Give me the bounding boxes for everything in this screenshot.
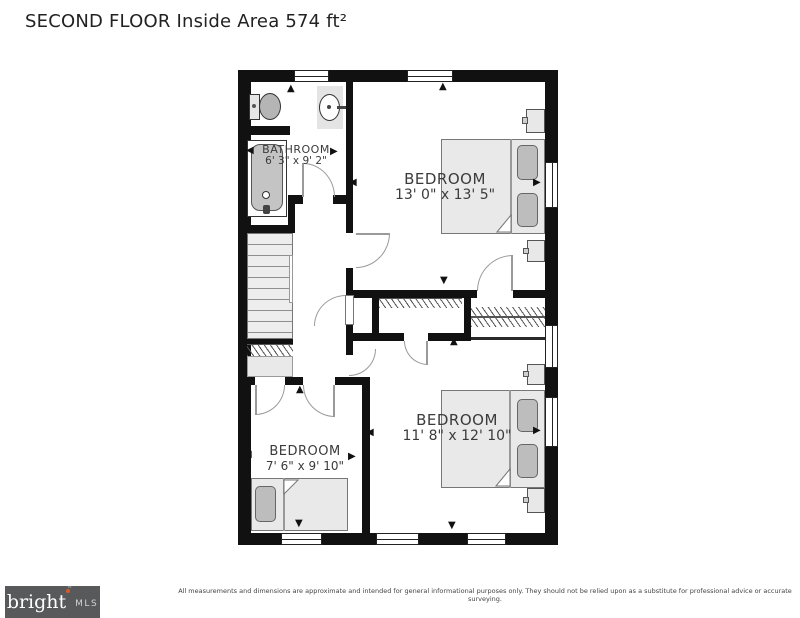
nightstand: [526, 109, 545, 133]
room-label-bedroom-bottom-left: BEDROOM 7' 6" x 9' 10": [249, 445, 361, 473]
sink-drain: [327, 105, 331, 109]
logo-trademark: ™: [67, 586, 72, 592]
pillow: [517, 193, 538, 227]
bathtub-faucet: [263, 205, 270, 214]
dimension-arrow-right-icon: ▶: [330, 147, 338, 157]
wall-bathroom-south: [333, 195, 353, 204]
nightstand-knob: [523, 248, 529, 254]
wall-bedroom-top-south: [513, 290, 545, 298]
staircase: [247, 233, 293, 339]
dimension-arrow-down-icon: ▼: [295, 519, 303, 529]
nightstand-knob: [523, 497, 529, 503]
door-arc-closet: [477, 255, 513, 291]
room-label-bedroom-bottom-right: BEDROOM 11' 8" x 12' 10": [392, 412, 522, 444]
window: [294, 70, 329, 82]
dimension-arrow-left-icon: ◀: [244, 450, 252, 460]
toilet-tank-knob: [252, 104, 256, 108]
door-leaf: [302, 163, 304, 197]
window: [467, 533, 506, 545]
door-arc-hall: [314, 295, 346, 326]
window: [545, 397, 558, 447]
dimension-arrow-left-icon: ◀: [349, 178, 357, 188]
floor-plan-page: SECOND FLOOR Inside Area 574 ft²: [0, 0, 800, 618]
room-label-bedroom-top: BEDROOM 13' 0" x 13' 5": [385, 171, 505, 203]
blanket-fold: [283, 479, 300, 496]
wall-bathroom-bedroom: [346, 82, 353, 233]
closet-rod: [471, 316, 545, 318]
dimension-arrow-right-icon: ▶: [348, 452, 356, 462]
window: [545, 325, 558, 368]
blanket-fold: [495, 468, 512, 488]
door-leaf: [511, 255, 513, 291]
wall-closet-front: [471, 337, 545, 340]
door-arc-closet: [255, 385, 285, 415]
brightmls-logo-text: bright™: [7, 593, 71, 612]
door-panel: [345, 295, 354, 325]
floor-plan: BATHROOM 6' 3" x 9' 2" BEDROOM 13' 0" x …: [0, 0, 800, 618]
dimension-arrow-left-icon: ◀: [246, 146, 254, 156]
closet-rod-hatch: [247, 344, 293, 356]
toilet-bowl: [259, 93, 281, 120]
door-arc-bedroom-bl: [303, 385, 335, 417]
blanket-fold: [496, 214, 513, 234]
nightstand-knob: [523, 371, 529, 377]
dimension-arrow-up-icon: ▲: [287, 84, 295, 94]
nightstand: [527, 240, 545, 262]
dimension-arrow-up-icon: ▲: [296, 385, 304, 395]
door-leaf: [356, 233, 390, 235]
closet-rod: [379, 298, 462, 299]
wall-mid-horizontal: [353, 333, 404, 341]
pillow: [255, 486, 276, 522]
dimension-arrow-up-icon: ▲: [439, 82, 447, 92]
door-arc-bathroom: [303, 163, 335, 197]
disclaimer-text: All measurements and dimensions are appr…: [170, 587, 800, 603]
dimension-arrow-right-icon: ▶: [533, 426, 541, 436]
door-leaf: [333, 385, 335, 417]
nightstand: [527, 364, 545, 385]
door-arc-bedroom-top: [356, 233, 390, 268]
sink-faucet: [337, 106, 346, 109]
closet-rod: [247, 344, 293, 345]
wall-bedroom-divider: [362, 377, 370, 533]
bathtub-drain: [262, 191, 270, 199]
nightstand: [527, 488, 545, 513]
door-arc-closet: [404, 341, 428, 365]
nightstand-knob: [522, 117, 528, 124]
under-stair-closet: [247, 356, 293, 377]
pillow: [517, 444, 538, 478]
wall-bedroom-bl-north: [251, 377, 255, 385]
dimension-arrow-down-icon: ▼: [440, 276, 448, 286]
brightmls-logo: bright™ MLS: [5, 586, 100, 618]
window: [545, 162, 558, 208]
brightmls-logo-suffix: MLS: [75, 599, 98, 609]
door-arc-hall-bottom: [349, 349, 376, 376]
pillow: [517, 145, 538, 180]
dimension-arrow-up-icon: ▲: [450, 337, 458, 347]
window: [376, 533, 419, 545]
dimension-arrow-right-icon: ▶: [533, 178, 541, 188]
wall-exterior-right: [545, 70, 558, 545]
dimension-arrow-left-icon: ◀: [366, 428, 374, 438]
door-leaf: [255, 385, 257, 415]
door-leaf: [426, 341, 428, 365]
stair-rail: [289, 255, 293, 303]
wall-hallway: [346, 268, 353, 295]
dimension-arrow-down-icon: ▼: [448, 521, 456, 531]
wall-tub-south: [245, 225, 292, 233]
window: [281, 533, 322, 545]
closet-rod-hatch: [379, 298, 462, 308]
wall-exterior-top: [238, 70, 558, 82]
wall-toilet-half: [245, 126, 290, 135]
